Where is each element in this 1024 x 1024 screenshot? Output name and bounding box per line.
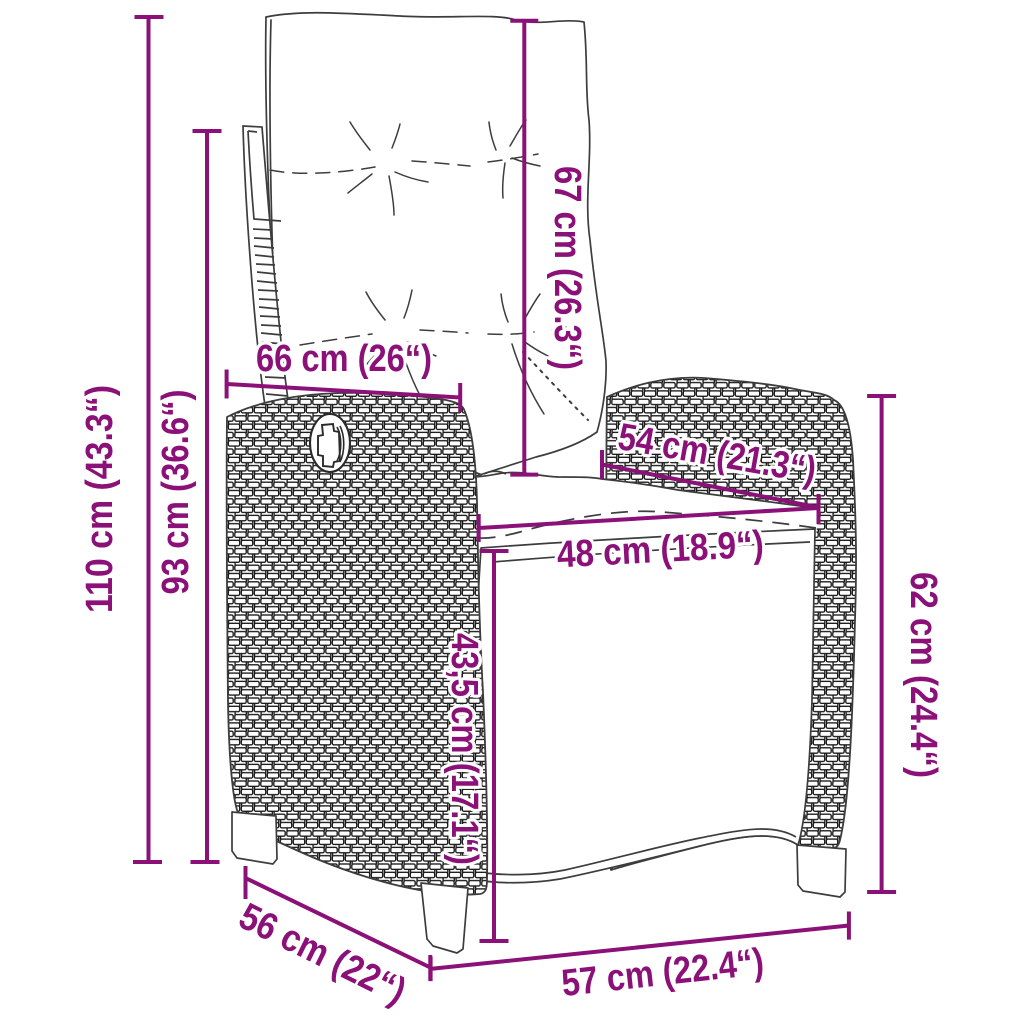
svg-text:43,5 cm (17.1“): 43,5 cm (17.1“) <box>443 633 485 865</box>
svg-text:66 cm (26“): 66 cm (26“) <box>256 338 432 380</box>
svg-text:62 cm (24.4“): 62 cm (24.4“) <box>902 572 944 778</box>
svg-text:67 cm (26.3“): 67 cm (26.3“) <box>546 166 588 370</box>
svg-text:110 cm (43.3“): 110 cm (43.3“) <box>79 385 121 613</box>
svg-text:93 cm (36.6“): 93 cm (36.6“) <box>155 390 197 595</box>
